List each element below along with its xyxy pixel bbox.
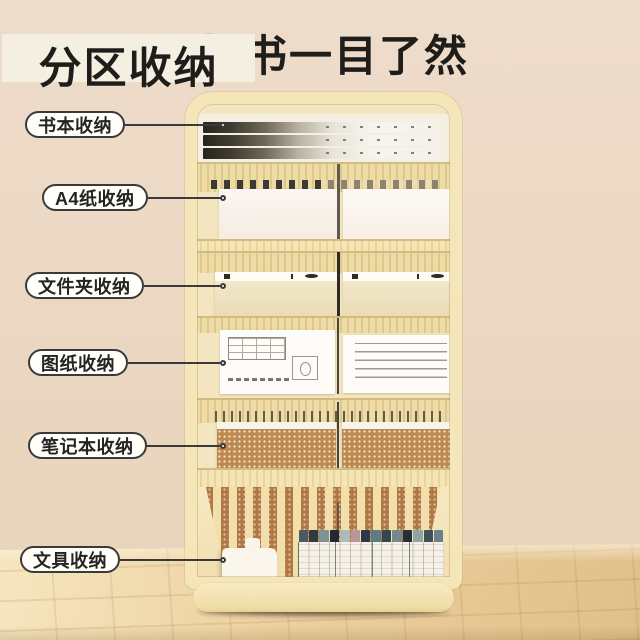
callout-dot xyxy=(220,195,226,201)
callout-label: 图纸收纳 xyxy=(28,349,128,376)
callout-label: 文具收纳 xyxy=(20,546,120,573)
callout-drawings: 图纸收纳 xyxy=(28,349,226,376)
callout-line xyxy=(144,285,221,287)
callout-line xyxy=(147,445,221,447)
notebook xyxy=(217,422,336,472)
notes-sheet xyxy=(343,335,452,393)
page-title: 分区收纳找书一目了然 xyxy=(0,22,640,84)
callout-line xyxy=(148,197,220,199)
product-poster: 分区收纳找书一目了然 xyxy=(0,0,640,640)
title-left: 分区收纳 xyxy=(2,34,255,82)
a4-paper-stack xyxy=(343,189,452,242)
callout-dot xyxy=(220,557,226,563)
file-folder xyxy=(343,272,452,317)
paper-clips-row xyxy=(211,180,439,189)
pocket-lip xyxy=(195,468,452,489)
center-divider xyxy=(337,318,339,394)
center-divider xyxy=(337,164,340,242)
callout-label: 笔记本收纳 xyxy=(28,432,147,459)
sketch-table xyxy=(228,337,286,360)
handwriting xyxy=(355,343,447,385)
callout-dot xyxy=(220,360,226,366)
tier-books xyxy=(197,114,450,162)
callout-label: A4纸收纳 xyxy=(42,184,148,211)
callout-books: 书本收纳 xyxy=(25,111,226,138)
tier-folder-pocket xyxy=(195,251,452,273)
callout-line xyxy=(120,559,220,561)
callout-folders: 文件夹收纳 xyxy=(25,272,226,299)
callout-dot xyxy=(220,283,226,289)
rack-interior xyxy=(195,102,452,584)
callout-notebooks: 笔记本收纳 xyxy=(28,432,226,459)
spiral-bindings xyxy=(215,411,443,422)
notebook xyxy=(342,422,452,472)
rack-base xyxy=(193,583,454,612)
folder-label-strip xyxy=(343,272,452,281)
a4-paper-stack xyxy=(219,189,337,242)
callout-line xyxy=(125,124,220,126)
sketch-caption xyxy=(228,378,292,381)
folder-label-strip xyxy=(215,272,337,281)
book xyxy=(203,148,439,159)
callout-label: 书本收纳 xyxy=(25,111,125,138)
marker-set xyxy=(298,542,444,581)
callout-dot xyxy=(220,122,226,128)
file-folder xyxy=(215,272,337,317)
callout-stationery: 文具收纳 xyxy=(20,546,226,573)
callout-a4-paper: A4纸收纳 xyxy=(42,184,226,211)
book xyxy=(203,122,439,133)
storage-rack xyxy=(185,92,462,612)
callout-line xyxy=(128,362,220,364)
book xyxy=(203,135,439,146)
drawing-sheet xyxy=(220,330,335,394)
stationery-box xyxy=(222,548,277,584)
callout-dot xyxy=(220,443,226,449)
callout-label: 文件夹收纳 xyxy=(25,272,144,299)
center-divider xyxy=(337,252,340,317)
center-divider xyxy=(337,402,339,472)
sketch-part xyxy=(292,356,318,380)
